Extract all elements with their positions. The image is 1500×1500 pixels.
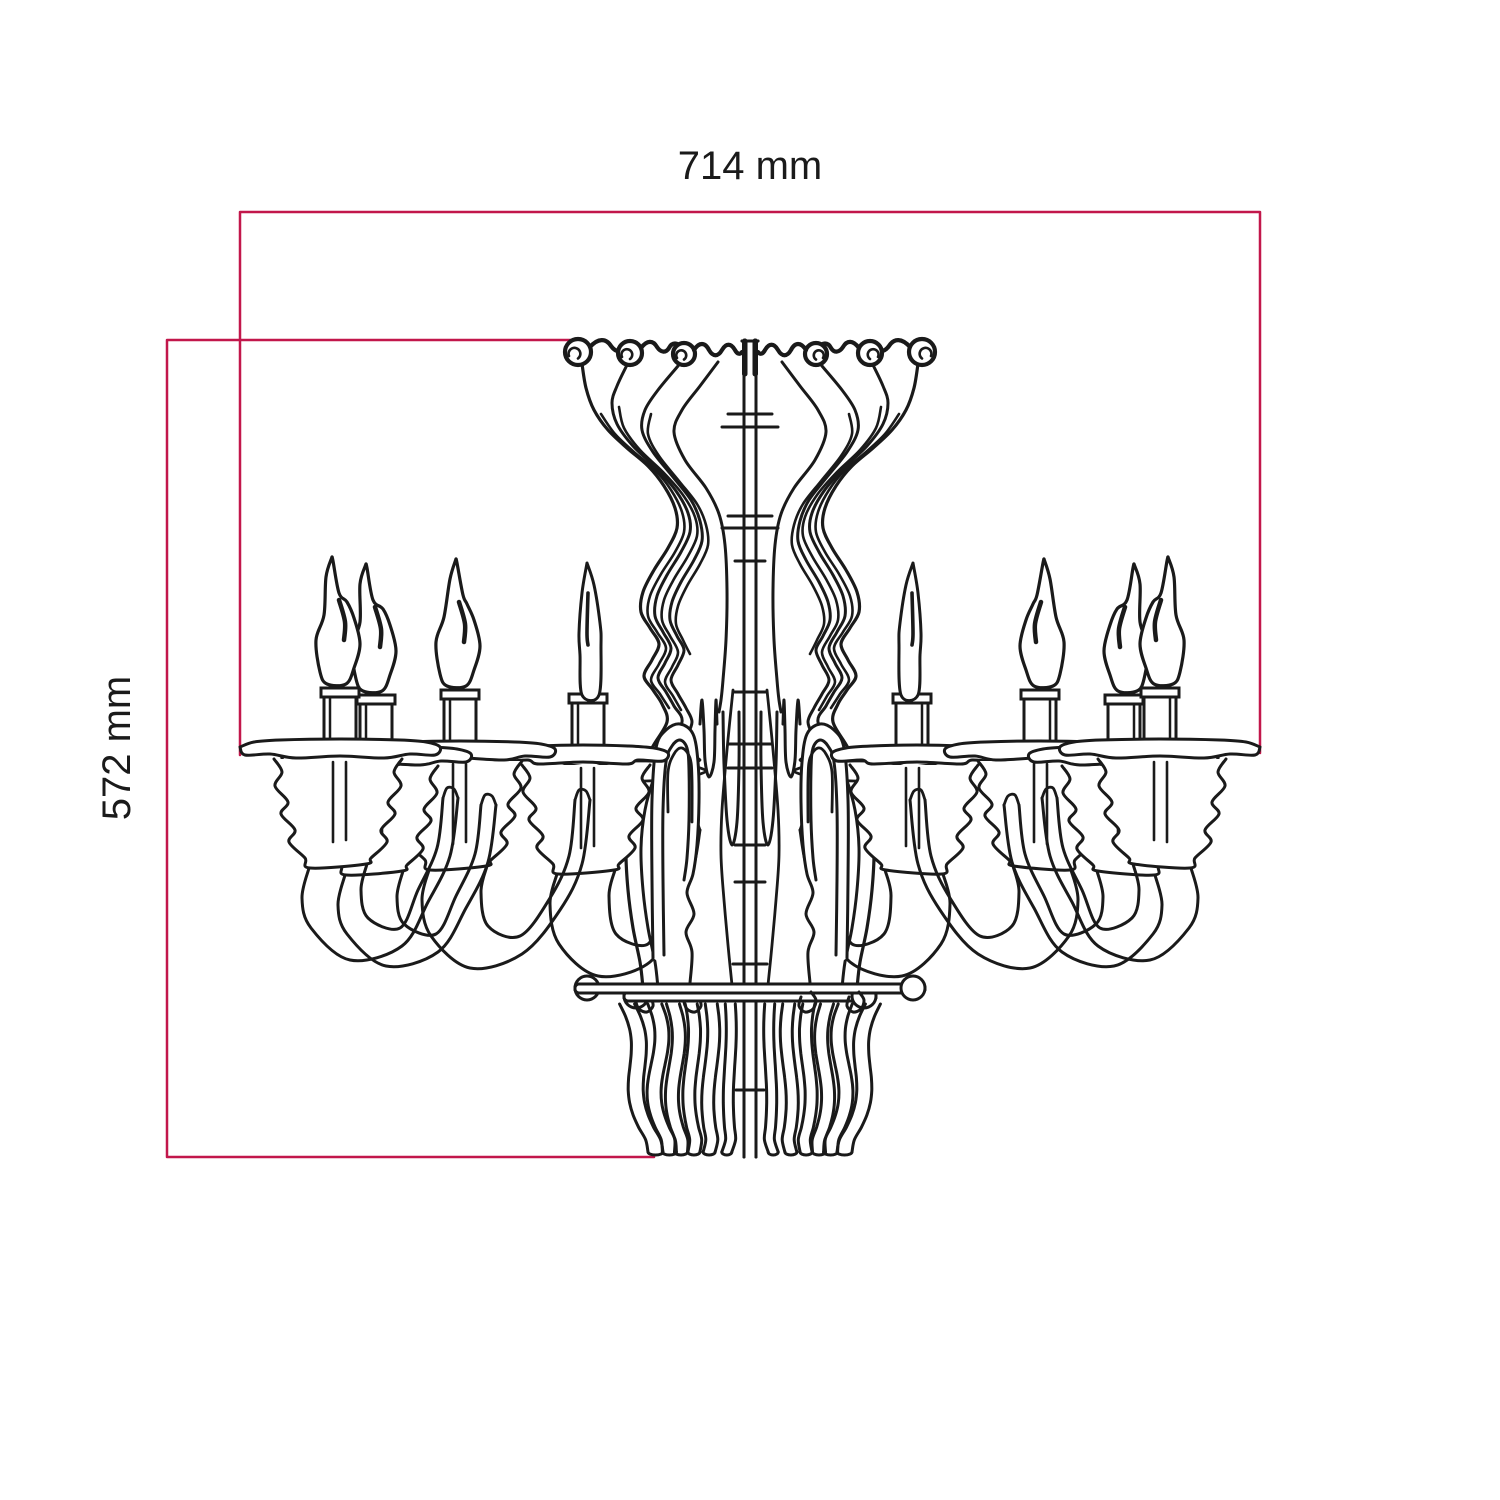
svg-text:714 mm: 714 mm [678,144,823,188]
svg-text:572 mm: 572 mm [95,676,139,821]
